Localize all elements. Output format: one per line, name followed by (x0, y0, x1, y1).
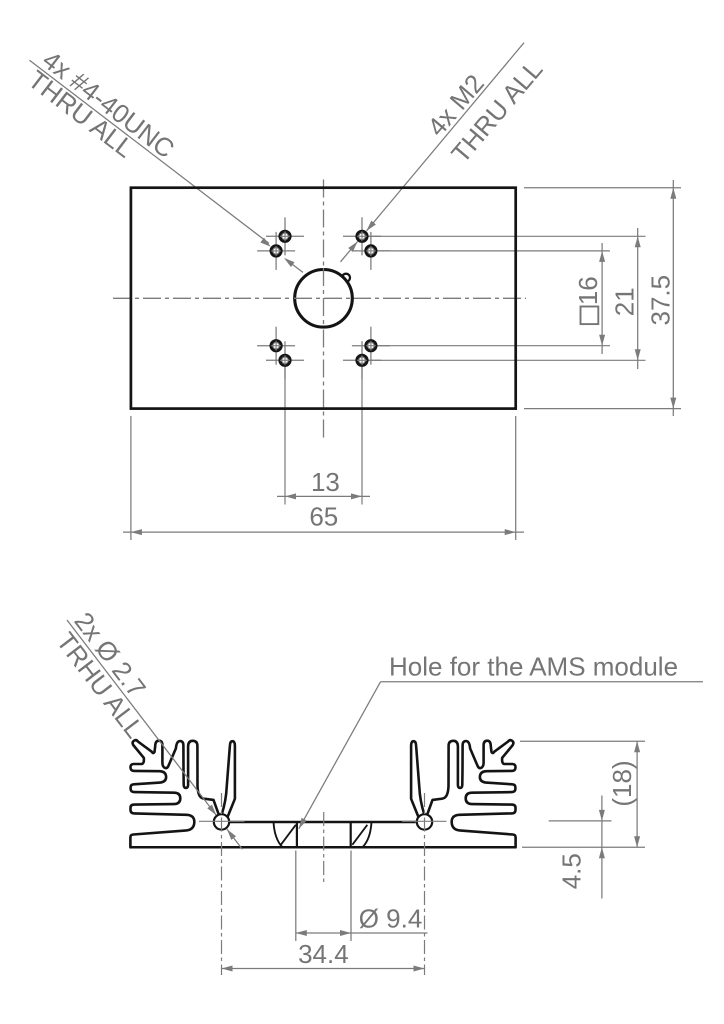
svg-text:65: 65 (309, 502, 338, 532)
svg-text:(18): (18) (607, 760, 637, 806)
svg-text:13: 13 (311, 467, 340, 497)
svg-text:37.5: 37.5 (645, 275, 675, 326)
svg-text:4.5: 4.5 (557, 853, 587, 889)
svg-text:Ø 9.4: Ø 9.4 (359, 904, 423, 934)
svg-text:Hole for the AMS module: Hole for the AMS module (389, 652, 678, 682)
svg-text:16: 16 (573, 276, 603, 305)
svg-text:34.4: 34.4 (298, 939, 349, 969)
svg-text:21: 21 (610, 287, 640, 316)
